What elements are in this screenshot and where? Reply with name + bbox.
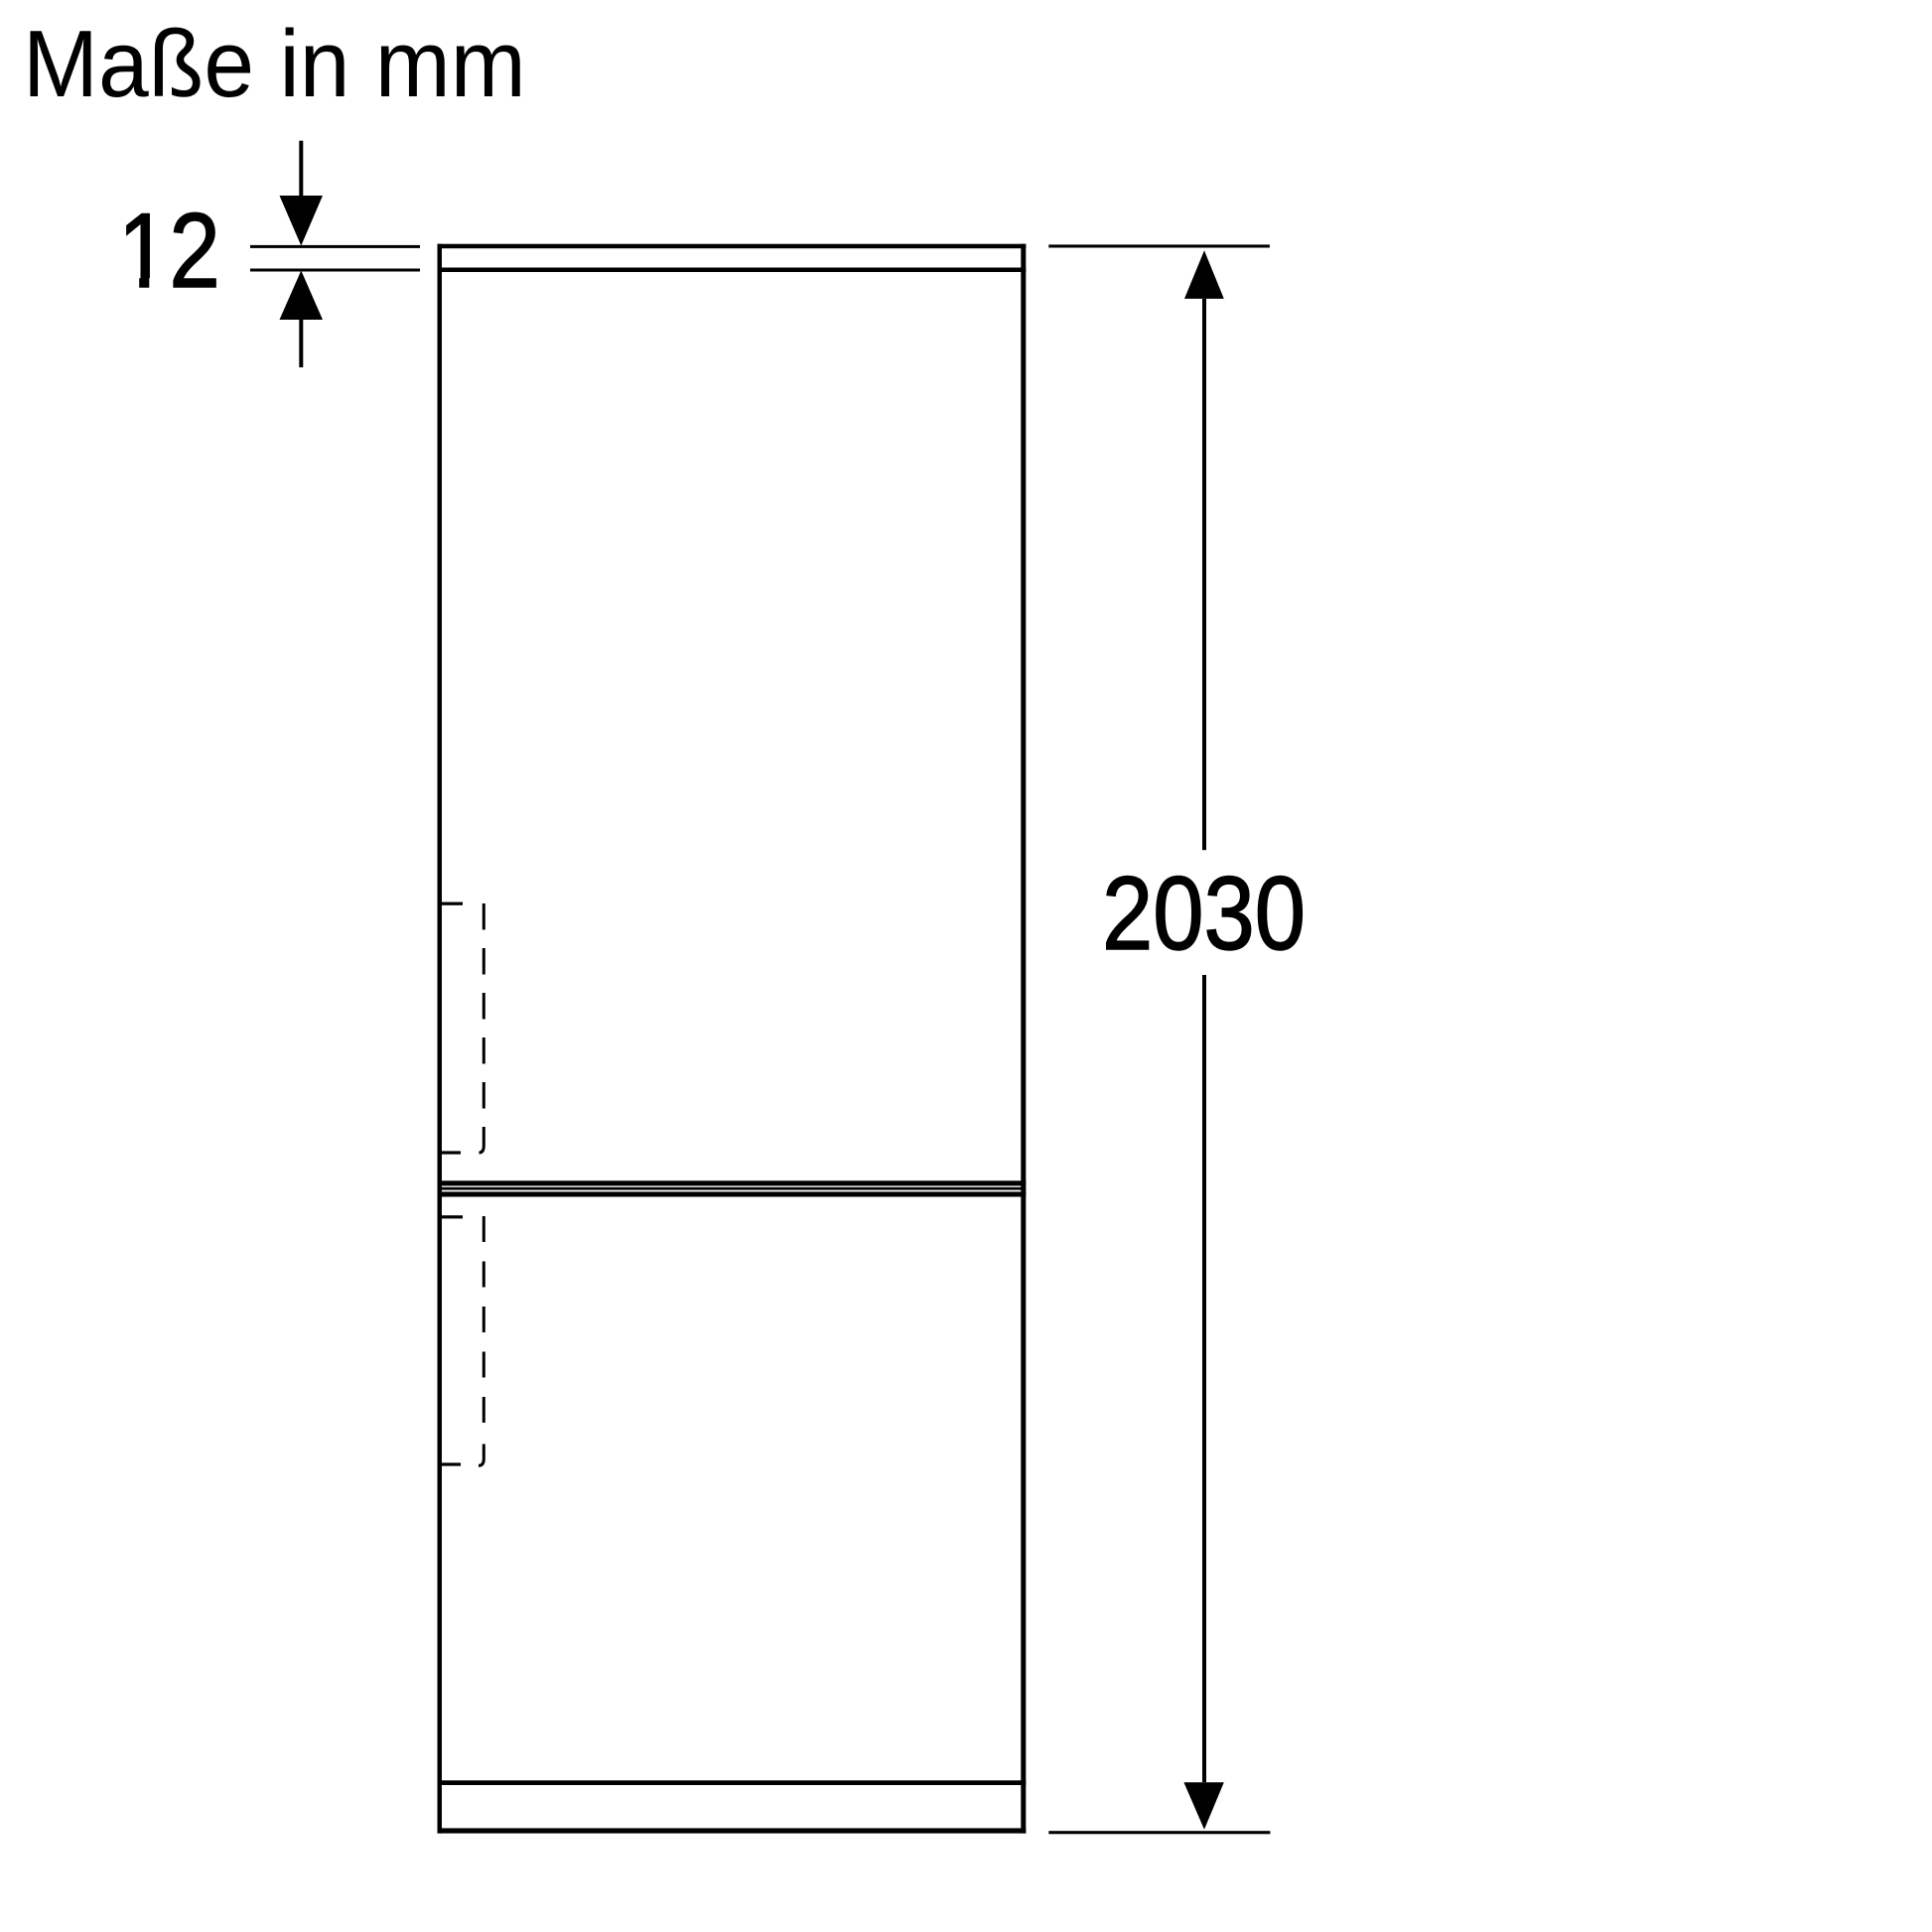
svg-text:12: 12 xyxy=(118,192,220,311)
svg-text:Maße in mm: Maße in mm xyxy=(23,10,526,117)
svg-text:2030: 2030 xyxy=(1102,855,1306,971)
